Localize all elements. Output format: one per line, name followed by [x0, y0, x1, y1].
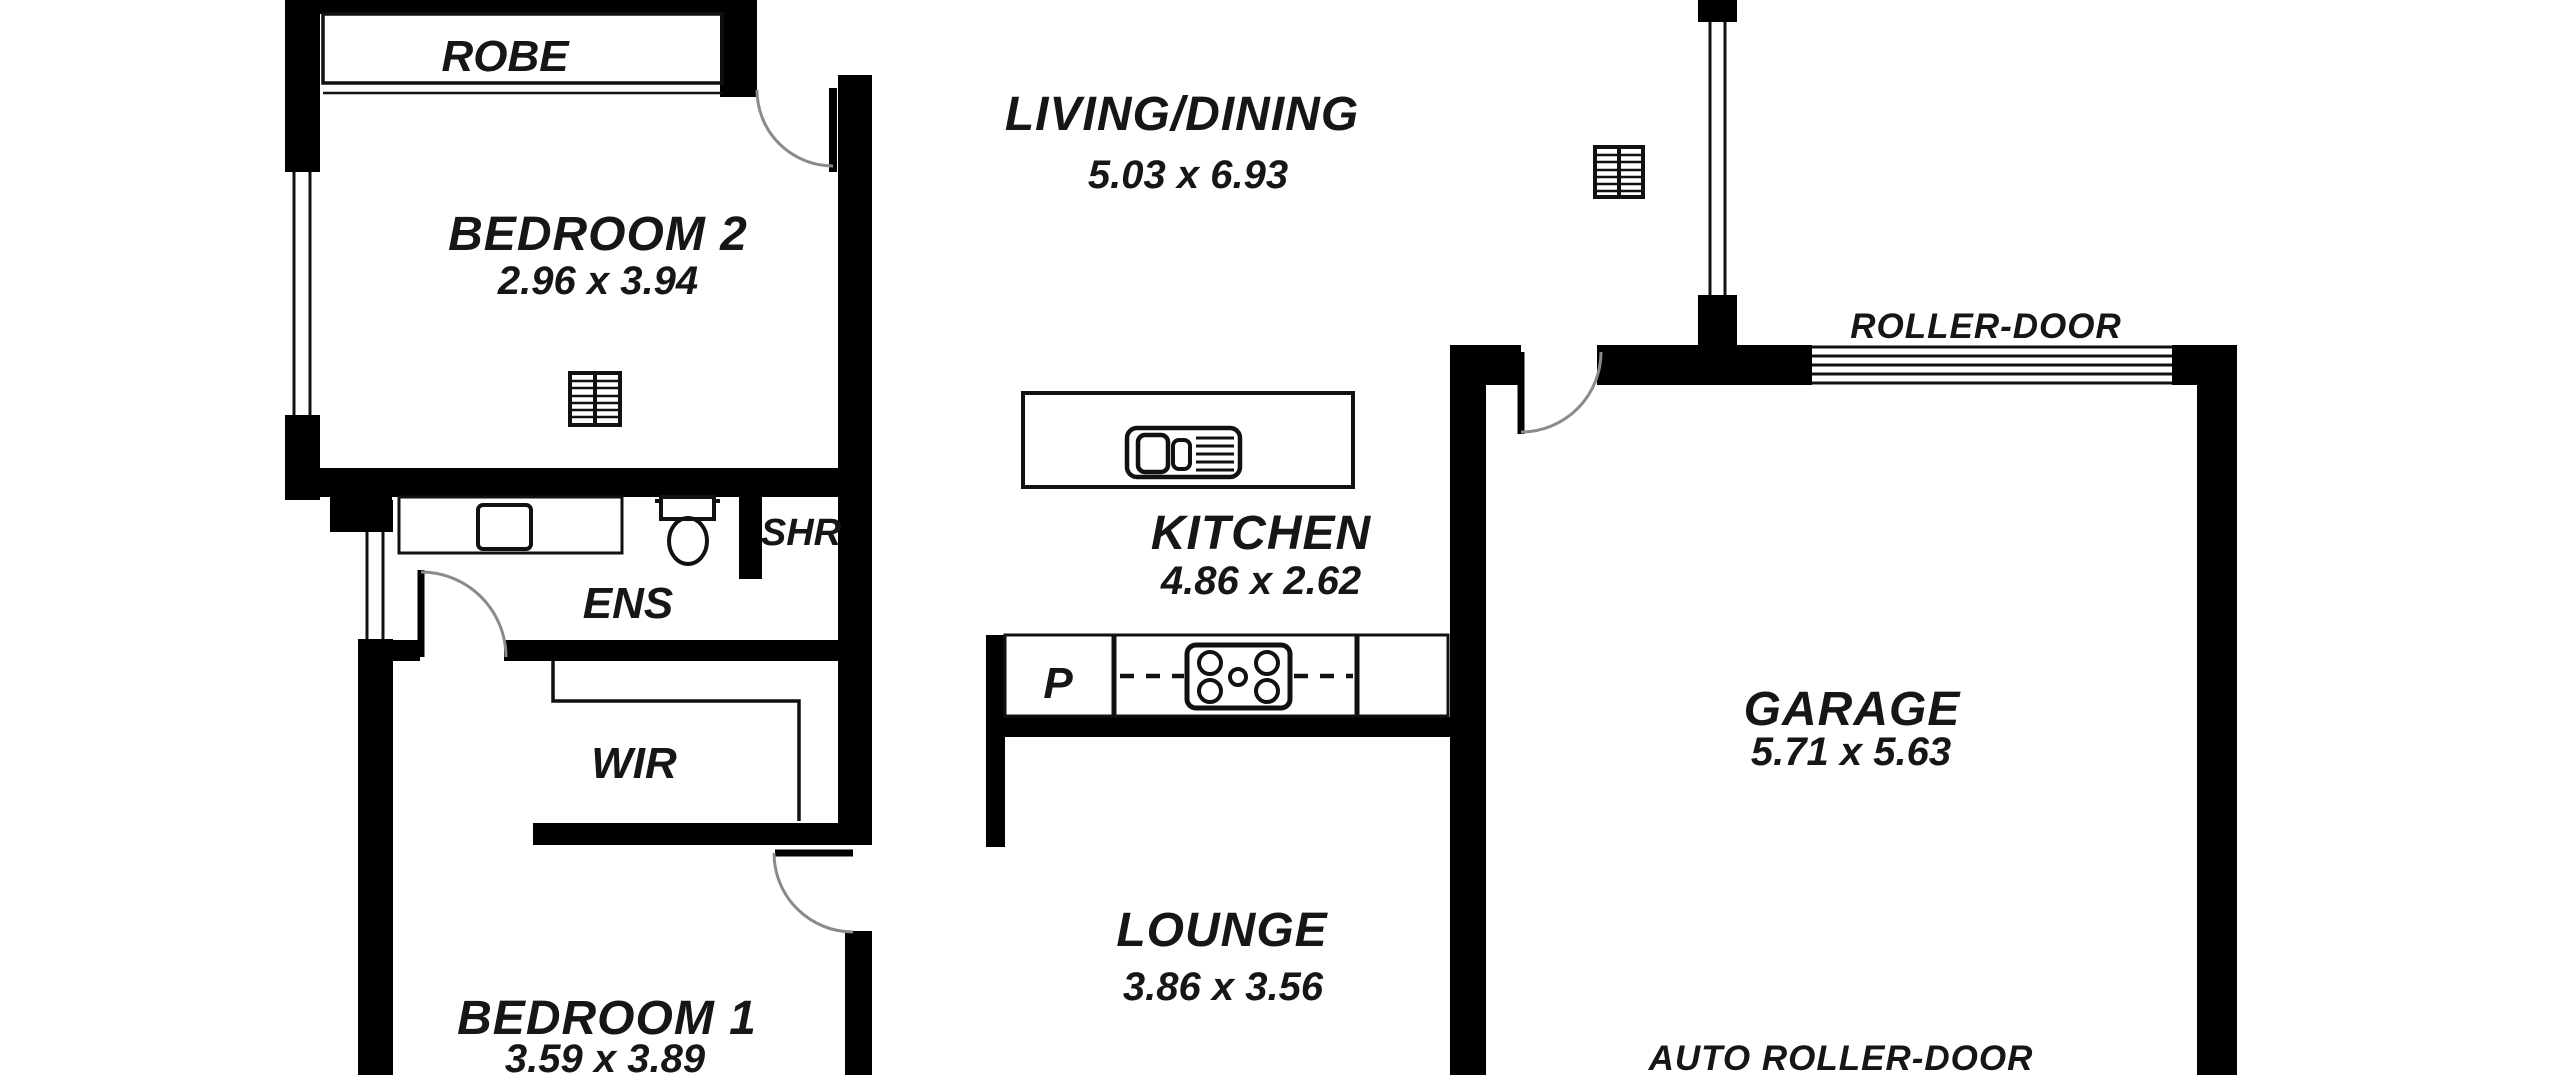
vanity-icon [399, 497, 622, 553]
room-label-lounge: LOUNGE [1116, 904, 1328, 957]
wall [358, 500, 393, 532]
door-bedroom-1 [774, 853, 853, 932]
zone-label-shower: SHR [761, 512, 842, 554]
floor-plan-drawing: ROBE BEDROOM 2 2.96 x 3.94 LIVING/DINING… [0, 0, 2560, 1075]
door-arc [421, 572, 506, 657]
annotation-auto-roller-door: AUTO ROLLER-DOOR [1648, 1039, 2034, 1075]
zone-label-ensuite: ENS [583, 579, 673, 628]
window [1698, 22, 1737, 295]
cooktop-icon [1187, 645, 1290, 708]
annotation-roller-door: ROLLER-DOOR [1850, 307, 2122, 346]
room-label-garage: GARAGE [1744, 683, 1962, 736]
door-bedroom-2 [757, 88, 833, 172]
door-arc [774, 853, 853, 932]
door-ensuite [421, 570, 506, 657]
floor-plan-page: ROBE BEDROOM 2 2.96 x 3.94 LIVING/DINING… [0, 0, 2560, 1075]
window [285, 172, 320, 415]
zone-label-pantry: P [1043, 659, 1073, 708]
room-dims-bedroom-1: 3.59 x 3.89 [505, 1037, 706, 1075]
wall [1698, 295, 1737, 352]
window [358, 532, 393, 639]
door-arc [757, 90, 833, 166]
room-dims-kitchen: 4.86 x 2.62 [1160, 559, 1361, 603]
wall [720, 0, 757, 97]
wall [845, 931, 872, 1075]
wall [285, 0, 743, 14]
wall [393, 640, 420, 661]
wall [1450, 347, 1486, 1075]
door-garage-entry [1521, 352, 1601, 434]
roller-door-hatch [1812, 345, 2172, 385]
vent-icon [570, 373, 620, 425]
room-dims-garage: 5.71 x 5.63 [1751, 730, 1951, 774]
zone-label-robe: ROBE [441, 32, 570, 81]
vent-icon [1595, 147, 1643, 197]
zone-label-wir: WIR [591, 739, 677, 788]
room-dims-bedroom-2: 2.96 x 3.94 [497, 259, 698, 303]
room-dims-living-dining: 5.03 x 6.93 [1088, 153, 1288, 197]
wall [358, 639, 393, 1075]
room-label-living-dining: LIVING/DINING [1005, 88, 1359, 141]
room-dims-lounge: 3.86 x 3.56 [1123, 965, 1324, 1009]
wall [1450, 345, 1521, 385]
wall [1698, 0, 1737, 22]
wall [739, 497, 762, 579]
kitchen-island [1023, 393, 1353, 487]
room-label-kitchen: KITCHEN [1151, 507, 1372, 560]
wall [2172, 345, 2237, 385]
wall [838, 75, 872, 844]
wall [285, 0, 320, 172]
wall [986, 635, 1005, 847]
wall [504, 640, 872, 661]
wall [2197, 385, 2237, 1075]
sink-icon [1127, 428, 1240, 477]
room-label-bedroom-2: BEDROOM 2 [448, 208, 748, 261]
wall [533, 823, 872, 845]
toilet-icon [655, 497, 720, 564]
door-arc [1521, 352, 1601, 432]
wall [1000, 717, 1454, 737]
